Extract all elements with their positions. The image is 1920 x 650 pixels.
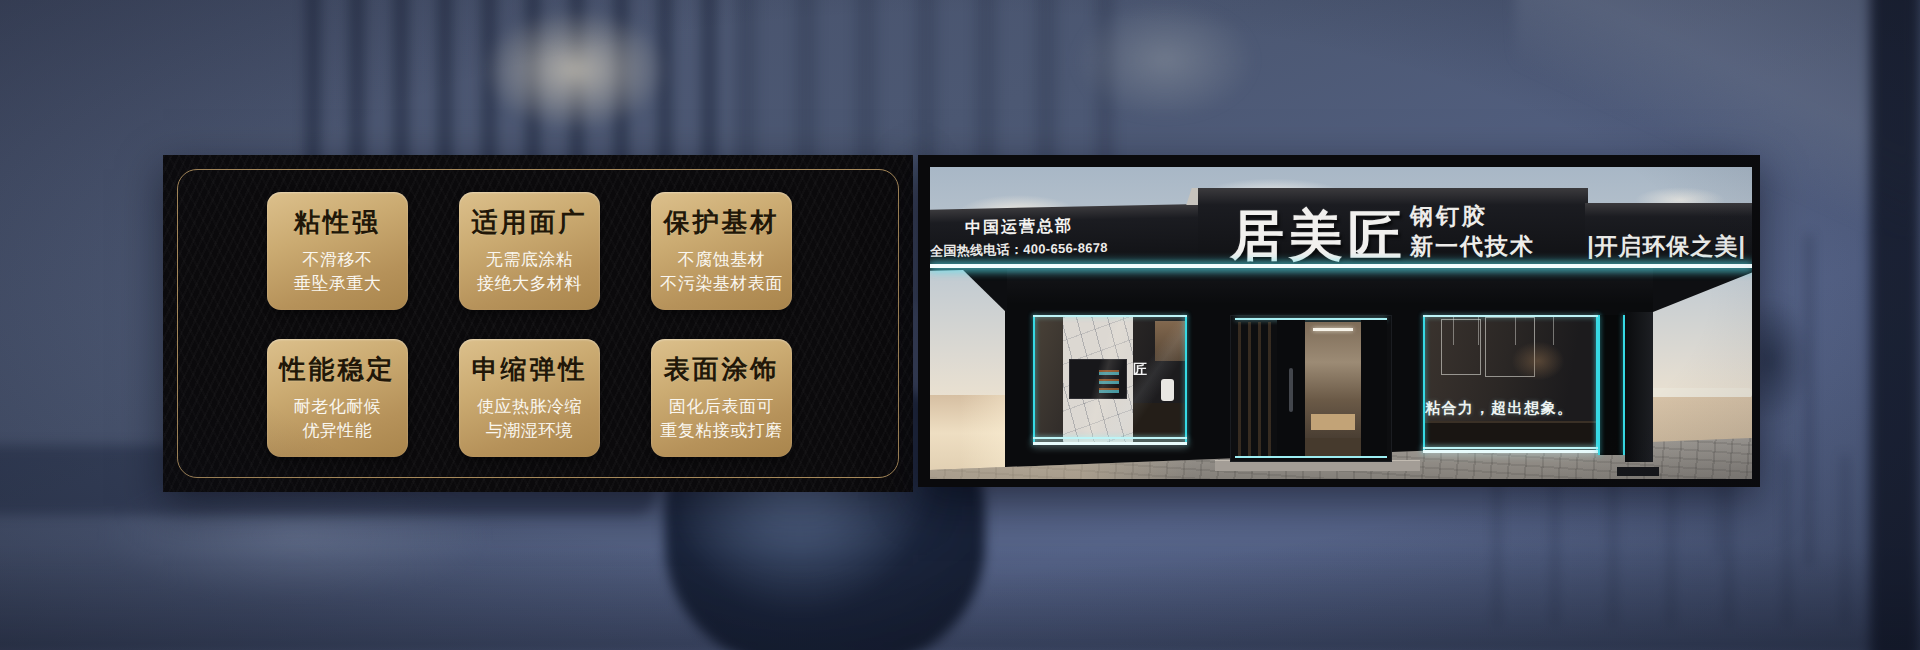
feature-card-protect: 保护基材 不腐蚀基材 不污染基材表面 xyxy=(651,192,792,310)
hanging-rod xyxy=(1515,315,1516,345)
feature-card-line: 不滑移不 xyxy=(303,248,373,272)
feature-card-title: 保护基材 xyxy=(664,205,780,240)
led-edge xyxy=(1423,315,1425,453)
door-handle xyxy=(1289,368,1293,412)
hanging-rod xyxy=(1453,315,1454,345)
feature-card-line: 不污染基材表面 xyxy=(660,272,783,296)
feature-card-stable: 性能稳定 耐老化耐候 优异性能 xyxy=(267,339,408,457)
feature-card-title: 申缩弹性 xyxy=(472,352,588,387)
side-wall xyxy=(1625,312,1653,462)
door-glass-left xyxy=(1238,322,1277,456)
storefront-scene: 匠 xyxy=(930,167,1752,479)
feature-card-elastic: 申缩弹性 使应热胀冷缩 与潮湿环境 xyxy=(459,339,600,457)
feature-card-line: 垂坠承重大 xyxy=(294,272,382,296)
sign-center: 居美匠 钢钉胶 新一代技术 xyxy=(1198,188,1588,265)
feature-card-adhesion: 粘性强 不滑移不 垂坠承重大 xyxy=(267,192,408,310)
feature-card-line: 与潮湿环境 xyxy=(486,419,574,443)
doormat xyxy=(1617,467,1659,476)
hotline-label: 全国热线电话：400-656-8678 xyxy=(930,239,1108,261)
glass-reflection xyxy=(1033,315,1187,445)
led-edge xyxy=(1423,315,1598,317)
hanging-rod xyxy=(1478,315,1479,345)
door-glass-right xyxy=(1305,322,1361,456)
entrance-door xyxy=(1230,315,1392,462)
sign-left-wing: 中国运营总部 全国热线电话：400-656-8678 xyxy=(930,204,1200,271)
interior-counter xyxy=(1311,414,1355,430)
interior-warm-light xyxy=(1503,335,1573,387)
feature-card-title: 表面涂饰 xyxy=(664,352,780,387)
brand-name: 居美匠 xyxy=(1230,200,1407,273)
bg-bottom-shade xyxy=(0,545,1920,650)
feature-card-line: 优异性能 xyxy=(303,419,373,443)
feature-card-line: 重复粘接或打磨 xyxy=(660,419,783,443)
door-stile xyxy=(1277,320,1305,458)
interior-floor xyxy=(1305,438,1361,456)
feature-card-wide-use: 适用面广 无需底涂粘 接绝大多材料 xyxy=(459,192,600,310)
hq-label: 中国运营总部 xyxy=(930,215,1108,240)
feature-card-line: 固化后表面可 xyxy=(669,395,774,419)
led-edge xyxy=(1423,447,1598,449)
feature-card-title: 适用面广 xyxy=(472,205,588,240)
led-base-glow xyxy=(1033,442,1187,445)
hanging-rod xyxy=(1553,315,1554,345)
feature-card-finish: 表面涂饰 固化后表面可 重复粘接或打磨 xyxy=(651,339,792,457)
feature-card-line: 使应热胀冷缩 xyxy=(477,395,582,419)
window-slogan: 粘合力，超出想象。 xyxy=(1425,399,1574,418)
feature-card-line: 不腐蚀基材 xyxy=(678,248,766,272)
door-stile xyxy=(1361,320,1387,458)
sign-right-wing: |开启环保之美| xyxy=(1585,203,1752,265)
display-window-left: 匠 xyxy=(1033,315,1187,445)
led-edge xyxy=(1033,315,1187,317)
display-window-right: 粘合力，超出想象。 xyxy=(1423,315,1598,453)
led-edge xyxy=(1598,315,1600,455)
product-line-2: 新一代技术 xyxy=(1410,231,1535,262)
led-edge xyxy=(1235,456,1387,458)
led-edge xyxy=(1033,437,1187,439)
feature-card-line: 耐老化耐候 xyxy=(294,395,382,419)
led-edge xyxy=(1033,315,1035,445)
led-base-glow xyxy=(1423,450,1598,453)
eco-slogan: |开启环保之美| xyxy=(1587,231,1746,262)
interior-ceiling-light xyxy=(1313,328,1353,331)
feature-panel: 粘性强 不滑移不 垂坠承重大 适用面广 无需底涂粘 接绝大多材料 保护基材 不腐… xyxy=(163,155,913,492)
promo-banner-image: 粘性强 不滑移不 垂坠承重大 适用面广 无需底涂粘 接绝大多材料 保护基材 不腐… xyxy=(0,0,1920,650)
feature-card-title: 粘性强 xyxy=(294,205,381,240)
feature-card-title: 性能稳定 xyxy=(280,352,396,387)
feature-card-grid: 粘性强 不滑移不 垂坠承重大 适用面广 无需底涂粘 接绝大多材料 保护基材 不腐… xyxy=(267,192,792,457)
product-line-1: 钢钉胶 xyxy=(1410,201,1488,232)
feature-card-line: 无需底涂粘 xyxy=(486,248,574,272)
sign-led-strip xyxy=(930,264,1752,268)
interior-partition-frame xyxy=(1441,319,1481,375)
corner-post xyxy=(1598,315,1625,455)
storefront-photo: 匠 xyxy=(918,155,1760,487)
led-edge xyxy=(1185,315,1187,445)
feature-card-line: 接绝大多材料 xyxy=(477,272,582,296)
